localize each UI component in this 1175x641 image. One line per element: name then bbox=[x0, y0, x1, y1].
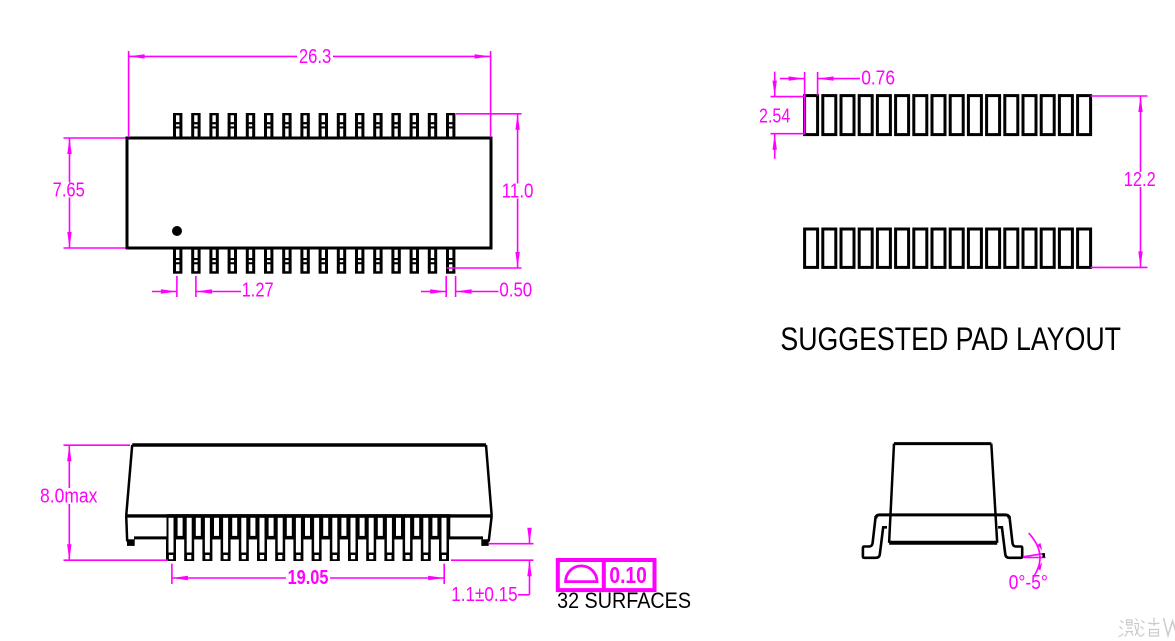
svg-text:0.50: 0.50 bbox=[499, 280, 532, 302]
svg-text:26.3: 26.3 bbox=[299, 46, 331, 68]
svg-text:0°-5°: 0°-5° bbox=[1009, 572, 1048, 594]
svg-text:0.10: 0.10 bbox=[609, 562, 646, 588]
svg-text:12.2: 12.2 bbox=[1124, 169, 1156, 191]
svg-text:32 SURFACES: 32 SURFACES bbox=[557, 588, 691, 613]
svg-text:8.0max: 8.0max bbox=[40, 485, 97, 507]
svg-text:0.76: 0.76 bbox=[861, 68, 895, 90]
svg-text:SUGGESTED PAD LAYOUT: SUGGESTED PAD LAYOUT bbox=[780, 321, 1121, 357]
svg-text:1.27: 1.27 bbox=[242, 280, 274, 302]
svg-text:7.65: 7.65 bbox=[53, 179, 85, 201]
svg-text:19.05: 19.05 bbox=[288, 566, 329, 589]
svg-text:11.0: 11.0 bbox=[502, 180, 534, 202]
svg-text:1.1±0.15: 1.1±0.15 bbox=[451, 584, 517, 606]
svg-text:2.54: 2.54 bbox=[759, 106, 790, 128]
